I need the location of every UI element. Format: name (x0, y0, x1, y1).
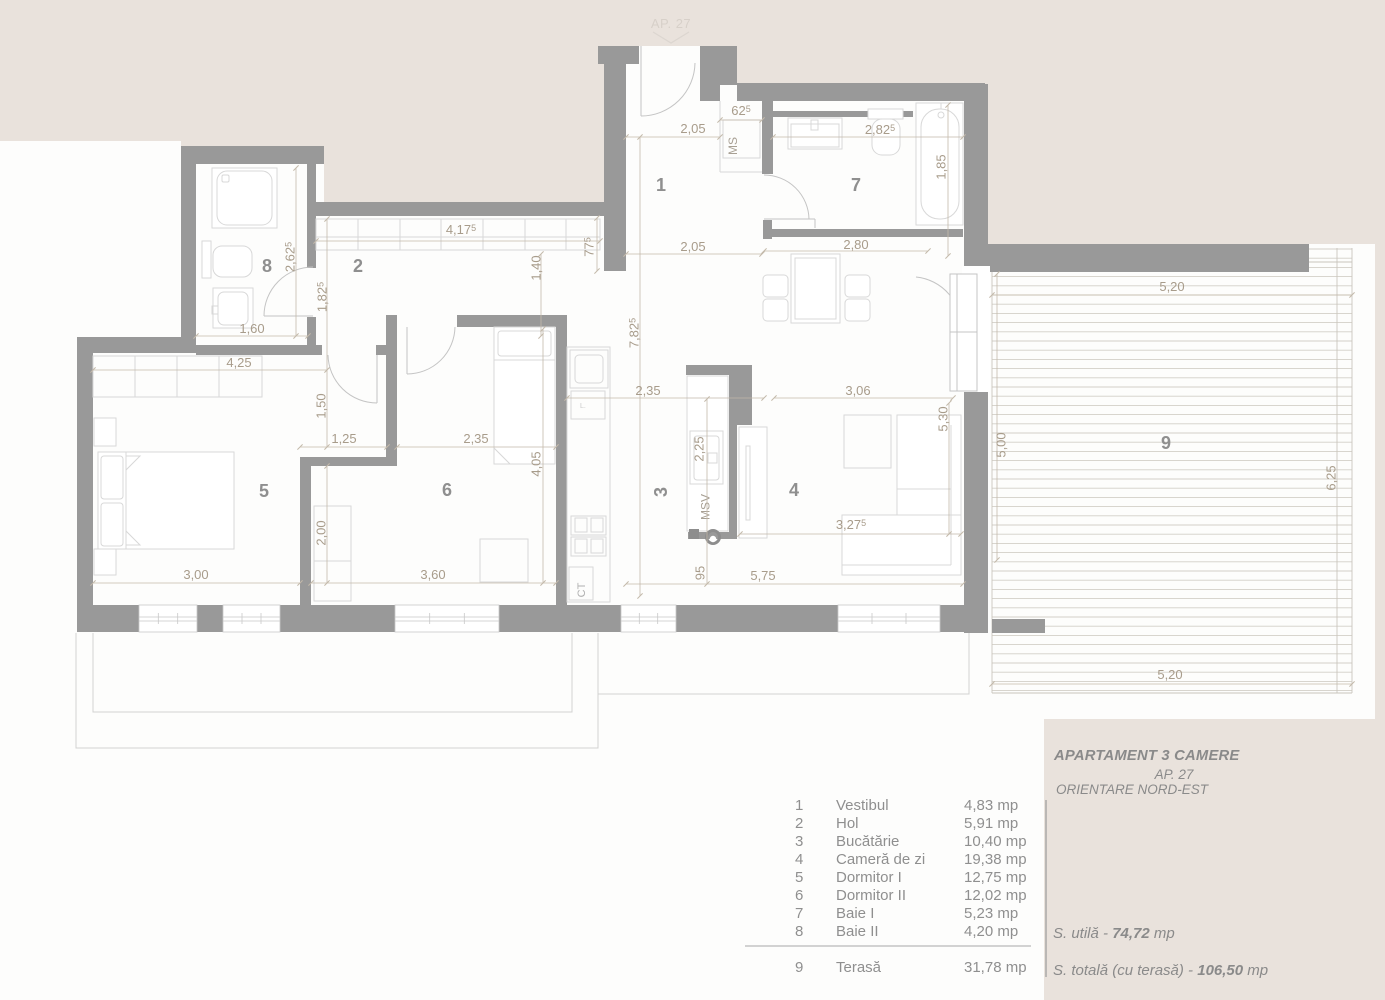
svg-text:3: 3 (651, 487, 671, 497)
svg-text:MS: MS (726, 137, 740, 155)
svg-text:5: 5 (259, 481, 269, 501)
svg-text:5,75: 5,75 (750, 568, 775, 583)
svg-text:8: 8 (262, 256, 272, 276)
svg-text:2,05: 2,05 (680, 121, 705, 136)
svg-text:4,25: 4,25 (226, 355, 251, 370)
svg-text:7: 7 (795, 905, 803, 922)
svg-text:19,38 mp: 19,38 mp (964, 851, 1027, 868)
svg-text:5,20: 5,20 (1157, 667, 1182, 682)
svg-text:9: 9 (1161, 433, 1171, 453)
svg-text:5,20: 5,20 (1159, 279, 1184, 294)
svg-text:Hol: Hol (836, 815, 859, 832)
svg-text:APARTAMENT 3 CAMERE: APARTAMENT 3 CAMERE (1053, 748, 1240, 764)
svg-text:6: 6 (442, 480, 452, 500)
svg-text:5,00: 5,00 (994, 432, 1009, 457)
svg-text:Cameră de zi: Cameră de zi (836, 851, 925, 868)
svg-text:1,40: 1,40 (529, 255, 544, 280)
svg-text:Dormitor II: Dormitor II (836, 887, 906, 904)
svg-text:1: 1 (656, 175, 666, 195)
svg-text:4,20 mp: 4,20 mp (964, 923, 1018, 940)
svg-text:4,83 mp: 4,83 mp (964, 797, 1018, 814)
svg-text:Bucătărie: Bucătărie (836, 833, 899, 850)
svg-text:10,40 mp: 10,40 mp (964, 833, 1027, 850)
svg-text:2,35: 2,35 (635, 383, 660, 398)
svg-text:3,00: 3,00 (183, 567, 208, 582)
svg-text:12,02 mp: 12,02 mp (964, 887, 1027, 904)
svg-text:5,23 mp: 5,23 mp (964, 905, 1018, 922)
svg-text:4,05: 4,05 (529, 451, 544, 476)
svg-text:95: 95 (693, 566, 708, 580)
svg-text:3,60: 3,60 (420, 567, 445, 582)
svg-text:S. utilă - 74,72 mp: S. utilă - 74,72 mp (1053, 925, 1175, 942)
svg-text:1: 1 (795, 797, 803, 814)
svg-text:5,30: 5,30 (936, 406, 951, 431)
svg-text:4: 4 (789, 480, 799, 500)
svg-text:5,91 mp: 5,91 mp (964, 815, 1018, 832)
svg-text:Baie II: Baie II (836, 923, 879, 940)
svg-text:6,25: 6,25 (1324, 465, 1339, 490)
svg-text:2: 2 (353, 256, 363, 276)
svg-text:AP. 27: AP. 27 (1154, 767, 1194, 782)
svg-text:AP. 27: AP. 27 (651, 16, 691, 31)
svg-text:Vestibul: Vestibul (836, 797, 889, 814)
svg-text:9: 9 (795, 959, 803, 976)
svg-text:L.: L. (580, 403, 586, 410)
svg-text:3,06: 3,06 (845, 383, 870, 398)
svg-text:2,25: 2,25 (692, 436, 707, 461)
svg-text:1,85: 1,85 (934, 154, 949, 179)
svg-text:ORIENTARE NORD-EST: ORIENTARE NORD-EST (1056, 782, 1210, 797)
svg-text:2,80: 2,80 (843, 237, 868, 252)
svg-text:Baie I: Baie I (836, 905, 874, 922)
svg-text:7: 7 (851, 175, 861, 195)
svg-text:MSV: MSV (699, 494, 713, 520)
svg-text:2,35: 2,35 (463, 431, 488, 446)
svg-text:CT: CT (576, 582, 588, 597)
svg-text:12,75 mp: 12,75 mp (964, 869, 1027, 886)
svg-text:1,25: 1,25 (331, 431, 356, 446)
svg-text:1,50: 1,50 (314, 393, 329, 418)
svg-text:S. totală (cu terasă) - 106,50: S. totală (cu terasă) - 106,50 mp (1053, 962, 1268, 979)
svg-text:2,05: 2,05 (680, 239, 705, 254)
svg-text:31,78 mp: 31,78 mp (964, 959, 1027, 976)
svg-text:2,00: 2,00 (314, 520, 329, 545)
svg-text:1,60: 1,60 (239, 321, 264, 336)
svg-text:6: 6 (795, 887, 803, 904)
svg-text:8: 8 (795, 923, 803, 940)
svg-text:3: 3 (795, 833, 803, 850)
svg-text:Terasă: Terasă (836, 959, 882, 976)
svg-text:4: 4 (795, 851, 803, 868)
svg-text:5: 5 (795, 869, 803, 886)
svg-text:2: 2 (795, 815, 803, 832)
svg-text:Dormitor I: Dormitor I (836, 869, 902, 886)
